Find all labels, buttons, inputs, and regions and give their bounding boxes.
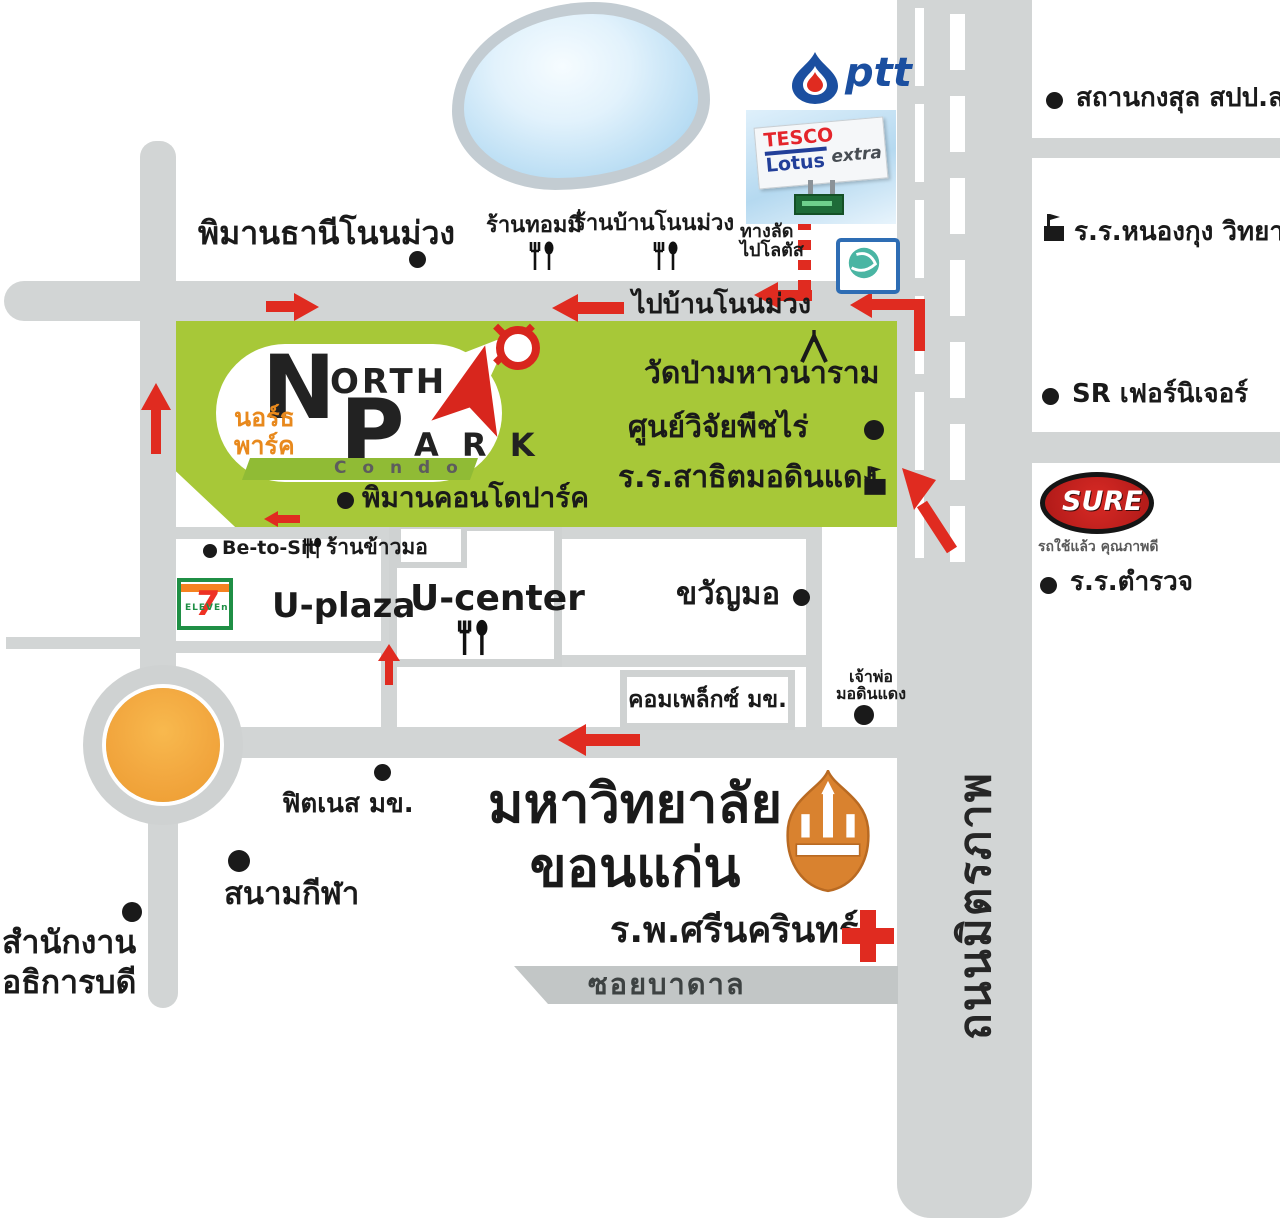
- mittraphap-road-label: ถนนมิตรภาพ: [940, 771, 1010, 1040]
- road-branch-top-right: [1032, 138, 1280, 158]
- shortcut-lotus-label: ทางลัด ไปโลตัส: [740, 222, 804, 261]
- tesco-line2: Lotus: [765, 151, 826, 177]
- ptt-drop-icon: [792, 52, 838, 104]
- u-center-label: U-center: [410, 580, 585, 619]
- seven-eleven-sub: ELEVEn: [185, 604, 229, 614]
- north-park-thai2: พาร์ค: [234, 432, 295, 459]
- arrow-diagonal-icon: [896, 462, 960, 554]
- fork-spoon-icon: [450, 618, 494, 660]
- north-park-thai1: นอร์ธ: [234, 404, 295, 431]
- chao-por-label: เจ้าพ่อ มอดินแดง: [836, 668, 906, 703]
- president-office-label: สำนักงาน อธิการบดี: [2, 922, 136, 1002]
- sr-furniture-dot: [1042, 388, 1059, 405]
- police-school-dot: [1040, 577, 1057, 594]
- road-bottom-horizontal: [210, 727, 897, 758]
- lotus-swirl-icon: [845, 244, 883, 282]
- to-ban-non-muang-label: ไปบ้านโนนม่วง: [632, 290, 811, 319]
- sure-wordmark: SURE: [1062, 487, 1143, 516]
- ptt-wordmark: ptt: [845, 52, 912, 95]
- kku-label: มหาวิทยาลัย ขอนแก่น: [488, 772, 782, 899]
- road-branch-mid-right: [1032, 432, 1280, 463]
- hospital-cross-icon: [842, 910, 894, 962]
- be-to-sit-dot: [203, 544, 217, 558]
- lao-consulate-label: สถานกงสุล สปป.ลาว: [1076, 84, 1280, 112]
- complex-block: คอมเพล็กซ์ มข.: [620, 670, 795, 730]
- tesco-sign: TESCO Lotus extra: [754, 116, 889, 189]
- piman-thani-label: พิมานธานีโนนม่วง: [198, 216, 455, 251]
- ran-khao-mo-label: ร้านข้าวมอ: [326, 536, 428, 559]
- road-stem-south: [148, 808, 178, 1008]
- piman-thani-dot: [409, 251, 426, 268]
- crop-research-label: ศูนย์วิจัยพืชไร่: [628, 412, 808, 444]
- school-flag-icon: [1040, 210, 1068, 244]
- stadium-dot: [228, 850, 250, 872]
- road-uplaza-bottom: [176, 641, 397, 653]
- complex-label: คอมเพล็กซ์ มข.: [628, 688, 787, 713]
- sr-furniture-label: SR เฟอร์นิเจอร์: [1072, 380, 1248, 408]
- police-school-label: ร.ร.ตำรวจ: [1070, 568, 1193, 596]
- roundabout-center: [106, 688, 220, 802]
- piman-condo-dot: [337, 492, 354, 509]
- kwan-mo-dot: [793, 589, 810, 606]
- u-plaza-label: U-plaza: [272, 588, 415, 625]
- sure-tagline: รถใช้แล้ว คุณภาพดี: [1038, 540, 1158, 555]
- stadium-label: สนามกีฬา: [224, 878, 359, 911]
- lao-consulate-dot: [1046, 92, 1063, 109]
- president-office-dot: [122, 902, 142, 922]
- tesco-billboard: TESCO Lotus extra: [746, 110, 896, 224]
- crosshair-marker-icon: [488, 318, 540, 370]
- fork-spoon-icon: [648, 240, 682, 274]
- khon-kaen-direction-map: ซอยบาดาล คอมเพล็กซ์ มข. N ORTH P A R K น…: [0, 0, 1280, 1221]
- pond: [452, 2, 710, 190]
- satit-school-label: ร.ร.สาธิตมอดินแดง: [618, 462, 877, 494]
- north-park-condo: C o n d o: [334, 459, 463, 477]
- pond-water: [464, 14, 698, 178]
- srinagarind-label: ร.พ.ศรีนครินทร์: [610, 912, 858, 951]
- kku-emblem-icon: [778, 770, 878, 895]
- chao-por-dot: [854, 705, 874, 725]
- kwan-mo-label: ขวัญมอ: [676, 578, 780, 611]
- north-park-bubble: N ORTH P A R K นอร์ธ พาร์ค C o n d o: [216, 344, 502, 482]
- tommy-shop-label: ร้านทอมมี่: [486, 214, 582, 238]
- fork-spoon-icon: [524, 240, 558, 274]
- tesco-extra: extra: [831, 144, 883, 167]
- fitness-label: ฟิตเนส มข.: [282, 790, 414, 818]
- road-vertical-b: [806, 527, 822, 757]
- school-flag-icon: [860, 462, 890, 498]
- road-thin-left-stub: [6, 637, 146, 649]
- ban-non-muang-shop-label: ร้านบ้านโนนม่วง: [574, 212, 734, 236]
- sure-logo: SURE: [1040, 472, 1154, 534]
- wat-pa-label: วัดป่ามหาวนาราม: [644, 358, 880, 390]
- fork-spoon-icon: [300, 536, 324, 562]
- led-sign: [794, 194, 844, 215]
- piman-condo-label: พิมานคอนโดปาร์ค: [362, 483, 589, 513]
- crop-research-dot: [864, 420, 884, 440]
- fitness-dot: [374, 764, 391, 781]
- lotus-logo: [836, 238, 900, 294]
- soi-badan-label: ซอยบาดาล: [588, 969, 746, 1000]
- seven-eleven-logo: 7 ELEVEn: [177, 578, 233, 630]
- nong-kung-school-label: ร.ร.หนองกุง วิทยาคาร: [1074, 218, 1280, 246]
